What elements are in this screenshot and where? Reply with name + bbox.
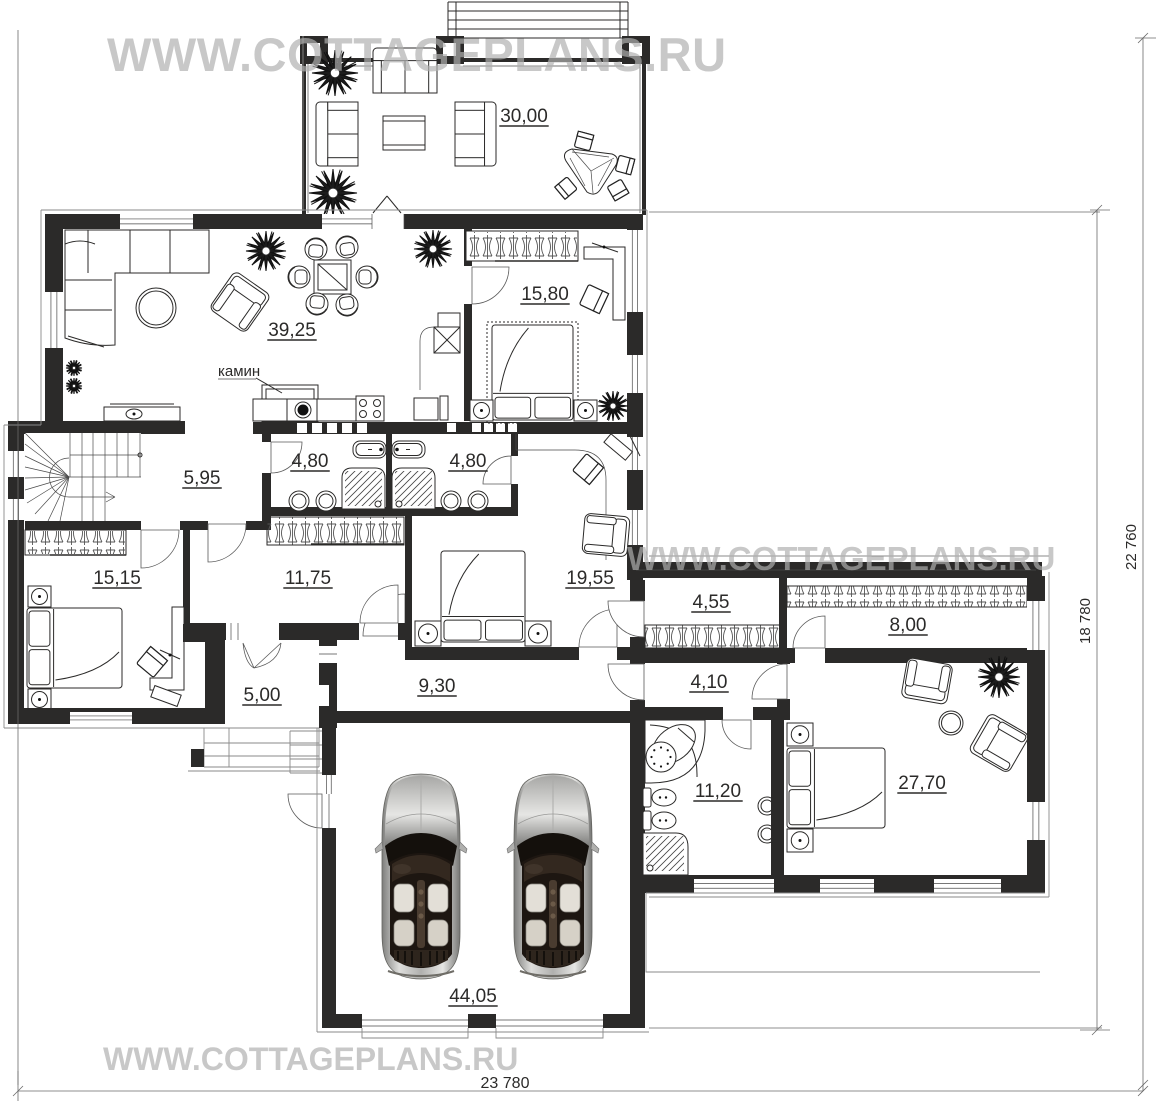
svg-text:5,95: 5,95 bbox=[184, 468, 221, 489]
svg-text:19,55: 19,55 bbox=[566, 568, 614, 589]
svg-text:WWW.COTTAGEPLANS.RU: WWW.COTTAGEPLANS.RU bbox=[107, 28, 727, 81]
svg-text:15,80: 15,80 bbox=[521, 284, 569, 305]
svg-text:4,80: 4,80 bbox=[292, 451, 329, 472]
svg-text:30,00: 30,00 bbox=[500, 106, 548, 127]
svg-text:27,70: 27,70 bbox=[898, 773, 946, 794]
svg-text:44,05: 44,05 bbox=[449, 986, 497, 1007]
svg-text:9,30: 9,30 bbox=[419, 676, 456, 697]
svg-text:22 760: 22 760 bbox=[1123, 524, 1140, 570]
svg-text:8,00: 8,00 bbox=[890, 615, 927, 636]
svg-text:39,25: 39,25 bbox=[268, 320, 316, 341]
svg-text:4,80: 4,80 bbox=[450, 451, 487, 472]
svg-text:23 780: 23 780 bbox=[481, 1075, 530, 1092]
svg-text:11,20: 11,20 bbox=[695, 781, 741, 802]
svg-text:15,15: 15,15 bbox=[93, 568, 141, 589]
svg-text:4,10: 4,10 bbox=[691, 672, 728, 693]
svg-text:WWW.COTTAGEPLANS.RU: WWW.COTTAGEPLANS.RU bbox=[627, 540, 1055, 577]
svg-text:4,55: 4,55 bbox=[693, 592, 730, 613]
svg-text:18 780: 18 780 bbox=[1077, 598, 1094, 644]
svg-text:камин: камин bbox=[218, 363, 260, 380]
svg-text:11,75: 11,75 bbox=[285, 568, 331, 589]
svg-text:WWW.COTTAGEPLANS.RU: WWW.COTTAGEPLANS.RU bbox=[103, 1041, 518, 1077]
svg-text:5,00: 5,00 bbox=[244, 685, 281, 706]
